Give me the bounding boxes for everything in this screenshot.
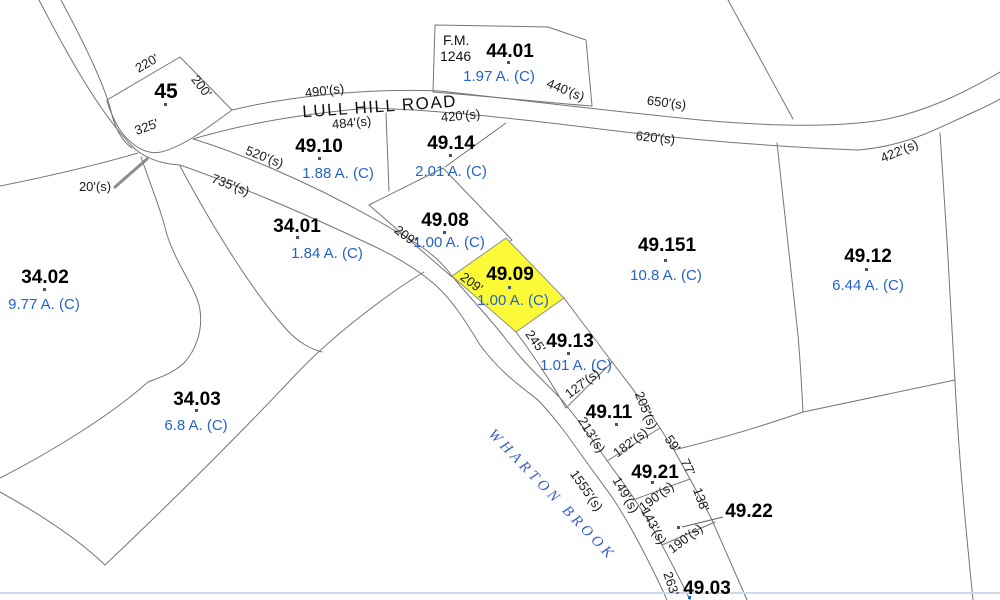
dim-143s: 143'(s): [638, 505, 670, 547]
dim-205s: 205'(s): [632, 389, 661, 431]
boundary-49-151-south: [674, 380, 955, 450]
parcel-acreage: 1.97 A. (C): [463, 68, 535, 85]
dim-420s: 420'(s): [440, 106, 481, 124]
parcel-label-34-02[interactable]: 34.02 9.77 A. (C): [8, 267, 80, 313]
parcel-number: 44.01: [486, 41, 534, 62]
parcel-centroid-dot: [318, 157, 321, 160]
dim-484s: 484'(s): [331, 113, 372, 131]
parcel-label-49-14[interactable]: 49.14 2.01 A. (C): [415, 133, 487, 180]
dim-520s: 520'(s): [244, 143, 286, 171]
boundary-34-02-lobe: [0, 492, 105, 565]
parcel-label-34-01[interactable]: 34.01 1.84 A. (C): [273, 216, 363, 262]
dim-735s: 735'(s): [210, 171, 252, 199]
parcel-label-49-10[interactable]: 49.10 1.88 A. (C): [295, 136, 374, 182]
divider-49-10-49-14: [386, 113, 389, 191]
divider-49-151-49-12: [777, 143, 803, 412]
parcel-number: 49.11: [586, 402, 633, 423]
parcel-number: 49.12: [844, 246, 892, 267]
parcel-number: 49.03: [683, 578, 731, 599]
parcel-acreage: 6.8 A. (C): [164, 417, 227, 434]
parcel-label-49-13[interactable]: 49.13 1.01 A. (C): [540, 331, 612, 374]
dim-650s: 650'(s): [646, 93, 687, 113]
parcel-centroid-dot: [195, 409, 198, 412]
parcel-map-canvas[interactable]: LULL HILL ROAD WHARTON BROOK F.M. 1246 4…: [0, 0, 1000, 600]
parcel-number: 49.10: [295, 136, 343, 157]
parcel-number: 49.21: [631, 462, 679, 483]
parcel-centroid-dot: [688, 596, 691, 599]
fm-label-line2: 1246: [440, 48, 471, 64]
parcel-label-49-151[interactable]: 49.151 10.8 A. (C): [630, 235, 702, 284]
parcel-acreage: 1.01 A. (C): [540, 357, 612, 374]
parcel-number: 34.02: [21, 267, 69, 288]
dim-440s: 440'(s): [545, 76, 587, 105]
boundary-49-12-east: [940, 133, 973, 600]
dimension-labels: 220' 200' 325' 20'(s) 490'(s) 484'(s) 42…: [79, 51, 920, 598]
dim-138: 138': [690, 486, 712, 514]
dim-325: 325': [133, 116, 161, 138]
parcel-centroid-dot: [449, 154, 452, 157]
brook-wiggle-boundary-34-02: [141, 157, 201, 382]
dim-20s: 20'(s): [79, 179, 111, 194]
parcel-49-13-northeast-edge: [564, 298, 612, 362]
parcel-label-49-12[interactable]: 49.12 6.44 A. (C): [832, 246, 904, 294]
parcel-number: 49.151: [638, 235, 697, 256]
boundary-34-03-northeast: [105, 272, 424, 565]
parcel-label-45[interactable]: 45: [154, 80, 178, 106]
parcel-centroid-dot: [296, 236, 299, 239]
parcel-45-boundary: [107, 57, 232, 153]
parcel-number: 34.03: [173, 389, 221, 410]
parcel-acreage: 1.88 A. (C): [302, 165, 374, 182]
parcel-label-44-01[interactable]: 44.01 1.97 A. (C): [463, 41, 535, 85]
parcel-label-49-08[interactable]: 49.08 1.00 A. (C): [413, 210, 485, 251]
parcel-number: 45: [154, 80, 178, 103]
dim-77: 77': [678, 456, 699, 478]
nw-road-east-edge: [61, 0, 132, 148]
parcel-number: 49.08: [421, 210, 469, 231]
parcel-centroid-dot: [507, 61, 510, 64]
parcel-label-49-03[interactable]: 49.03: [683, 578, 731, 599]
north-parcel-divider: [728, 0, 793, 119]
parcel-number: 49.14: [427, 133, 475, 154]
dim-245: 245': [522, 327, 548, 355]
diagonal-road-east-edge: [193, 139, 690, 600]
parcel-centroid-dot: [677, 526, 680, 529]
parcel-acreage: 1.84 A. (C): [291, 245, 363, 262]
dim-220: 220': [133, 51, 161, 76]
parcel-label-34-03[interactable]: 34.03 6.8 A. (C): [164, 389, 227, 434]
west-boundary-to-left-edge: [0, 153, 138, 186]
fm-label-line1: F.M.: [443, 32, 469, 48]
parcel-acreage: 1.00 A. (C): [413, 234, 485, 251]
dim-620s: 620'(s): [635, 128, 676, 147]
parcel-acreage: 10.8 A. (C): [630, 267, 702, 284]
dim-422s: 422'(s): [878, 136, 920, 165]
parcel-acreage: 9.77 A. (C): [8, 296, 80, 313]
parcel-acreage: 1.00 A. (C): [477, 292, 549, 309]
parcel-number: 49.22: [725, 501, 773, 522]
parcel-centroid-dot: [664, 259, 667, 262]
parcel-centroid-dot: [615, 423, 618, 426]
parcel-number: 49.09: [486, 264, 534, 285]
parcel-centroid-dot: [865, 268, 868, 271]
parcel-label-49-21[interactable]: 49.21: [631, 462, 679, 484]
parcel-map-viewport[interactable]: LULL HILL ROAD WHARTON BROOK F.M. 1246 4…: [0, 0, 1000, 600]
leader-49-22: [682, 517, 723, 527]
parcel-centroid-dot: [508, 286, 511, 289]
parcel-acreage: 2.01 A. (C): [415, 163, 487, 180]
parcel-centroid-dot: [567, 352, 570, 355]
parcel-acreage: 6.44 A. (C): [832, 277, 904, 294]
parcel-centroid-dot: [651, 481, 654, 484]
parcel-centroid-dot: [43, 288, 46, 291]
parcel-number: 49.13: [546, 331, 594, 352]
dim-182s: 182'(s): [610, 425, 650, 461]
dim-490s: 490'(s): [304, 81, 345, 101]
leader-20ft: [115, 159, 147, 187]
parcel-centroid-dot: [164, 103, 167, 106]
dim-200: 200': [188, 72, 215, 100]
parcel-number: 34.01: [273, 216, 321, 237]
boundary-34-02-south: [0, 382, 148, 478]
